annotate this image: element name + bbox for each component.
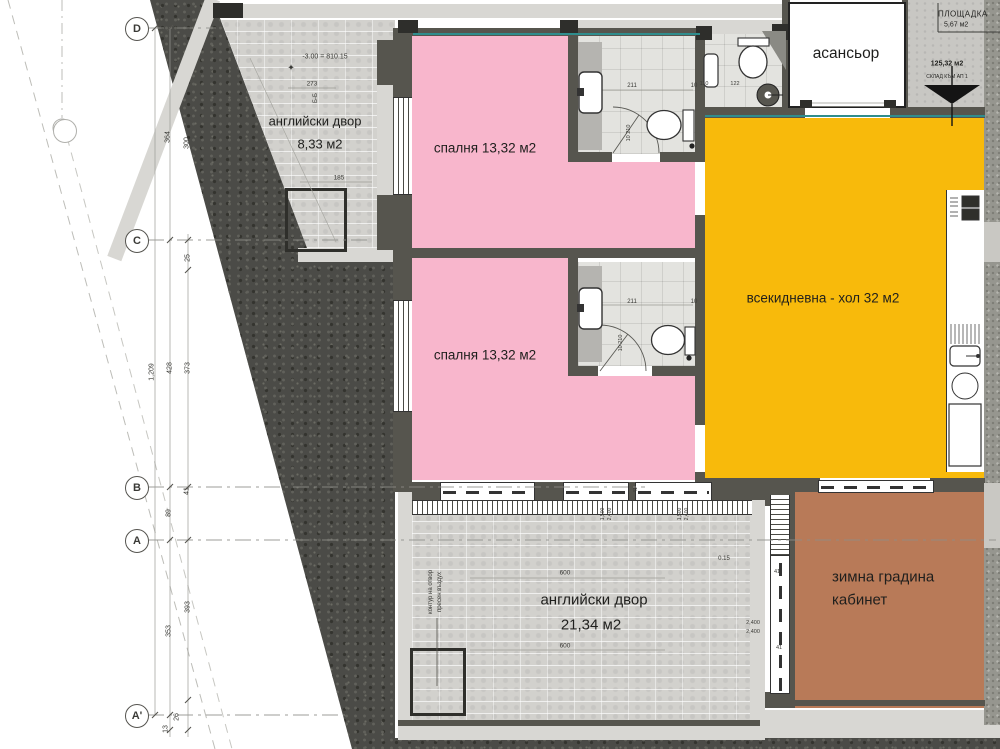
wall	[393, 258, 412, 300]
wall	[412, 482, 440, 500]
room-label-courtyard-upper: английски двор	[269, 114, 362, 129]
pier	[560, 20, 578, 34]
right-exterior-wall	[984, 0, 1000, 725]
wall	[393, 36, 412, 97]
courtyard-lower-right-wall	[750, 492, 765, 740]
dimension-label: 13	[163, 725, 170, 733]
wall	[533, 482, 563, 500]
courtyard-lower-pit	[410, 648, 466, 716]
wall	[930, 478, 985, 492]
dimension-label: пресен въздух	[437, 572, 443, 612]
bathroom2-counter	[578, 266, 602, 362]
grid-bubble-a: A	[125, 529, 149, 553]
dimension-label: 2,400	[746, 620, 760, 626]
room-label-courtyard-upper-area: 8,33 м2	[297, 137, 342, 152]
dimension-label: 41	[633, 487, 639, 493]
bottom-hatch-right	[760, 710, 1000, 738]
wall	[377, 40, 393, 85]
room-label-bedroom1: спалня 13,32 м2	[434, 141, 536, 156]
pier	[398, 20, 418, 33]
wall	[568, 258, 578, 376]
dimension-label: 428	[167, 362, 174, 374]
wall	[695, 28, 705, 160]
dimension-label: 393	[185, 601, 192, 613]
dimension-label: 1,209	[149, 363, 156, 381]
wall	[568, 152, 612, 162]
dimension-label: 89	[166, 509, 173, 517]
dimension-label: 2,400	[746, 629, 760, 635]
wall	[710, 482, 772, 500]
wall-block	[984, 222, 1000, 262]
dimension-label: 600	[560, 570, 571, 577]
bedroom2-hall-fill	[568, 376, 695, 480]
floor-plan: D C B A A' английски двор 8,33 м2 спалня…	[0, 0, 1000, 749]
wall	[398, 720, 760, 726]
room-label-landing: ПЛОЩАДКА	[938, 10, 988, 19]
courtyard-upper-pit	[285, 188, 347, 252]
window	[563, 482, 629, 502]
room-label-elevator: асансьор	[813, 45, 880, 63]
dimension-label: 26	[174, 713, 181, 721]
window	[635, 482, 712, 502]
wall	[695, 215, 705, 425]
dimension-label: 1,500	[600, 508, 606, 521]
dimension-label: 41	[184, 487, 191, 495]
room-label-courtyard-lower-area: 21,34 м2	[561, 617, 621, 634]
dimension-label: 1,500	[677, 508, 683, 521]
wall	[568, 36, 578, 162]
dimension-label: 211	[627, 299, 637, 305]
winter-garden-grate	[770, 495, 790, 555]
dimension-label: ✦	[287, 63, 295, 74]
grid-bubble-empty	[53, 119, 77, 143]
dimension-label: 10 210	[618, 335, 624, 352]
courtyard-upper-grate	[377, 85, 393, 195]
bedroom1-window	[393, 97, 412, 195]
pier	[213, 3, 243, 18]
grid-bubble-b: B	[125, 476, 149, 500]
wall	[568, 366, 598, 376]
dimension-label: 2,400	[607, 508, 613, 521]
dimension-label: 185	[334, 175, 345, 182]
dimension-label: 10 210	[626, 125, 632, 142]
room-label-living: всекидневна - хол 32 м2	[747, 291, 900, 306]
dimension-label: 300	[184, 137, 191, 149]
room-label-landing-area: 5,67 м2	[944, 22, 968, 29]
storage-area-label: 125,32 м2	[931, 61, 963, 68]
bedroom2-fill	[412, 258, 568, 480]
dimension-label: 10	[691, 299, 698, 305]
dimension-label: 353	[166, 625, 173, 637]
dimension-label: 25	[185, 254, 192, 262]
bedroom1-hall-fill	[568, 162, 695, 248]
dimension-label: 373	[185, 362, 192, 374]
wc-floor	[703, 30, 783, 108]
window	[440, 482, 535, 502]
bathroom1-counter	[578, 42, 602, 150]
dimension-label: контур на отвор	[428, 570, 434, 614]
storage-name-label: СКЛАД КЪМ АП 1	[926, 74, 968, 80]
dimension-label: 122	[730, 81, 739, 87]
living-south-window	[818, 480, 934, 493]
bedroom2-window	[393, 300, 412, 412]
dimension-label: 10	[691, 83, 698, 89]
winter-garden-fill	[795, 492, 985, 708]
dimension-label: 273	[307, 81, 318, 88]
dimension-label: 600	[560, 643, 571, 650]
window-sill-strip	[412, 500, 752, 515]
grid-bubble-a-prime: A'	[125, 704, 149, 728]
dimension-label: 364	[165, 131, 172, 143]
room-label-courtyard-lower: английски двор	[540, 592, 647, 609]
dimension-label: -3.00 = 810.15	[302, 54, 347, 61]
wall	[393, 193, 412, 258]
dimension-label: 110	[700, 81, 709, 87]
room-label-winter-garden-1: зимна градина	[832, 569, 934, 586]
wall	[377, 195, 393, 250]
waterproofing-line	[413, 33, 700, 35]
dimension-label: 41	[776, 645, 782, 651]
grid-bubble-d: D	[125, 17, 149, 41]
grid-bubble-c: C	[125, 229, 149, 253]
wall	[792, 700, 985, 706]
room-label-winter-garden-2: кабинет	[832, 592, 887, 609]
dimension-label: 211	[627, 83, 637, 89]
room-label-bedroom2: спалня 13,32 м2	[434, 348, 536, 363]
wall	[393, 248, 703, 258]
courtyard-lower-bottom-hatch	[398, 726, 760, 740]
dimension-label: 41	[774, 569, 780, 575]
top-wall-hatch	[213, 4, 790, 18]
kitchen-counter	[946, 190, 985, 472]
wall-block	[984, 483, 1000, 548]
wall	[393, 410, 412, 492]
winter-garden-window	[770, 555, 790, 694]
waterproofing-line-2	[705, 115, 985, 117]
dimension-label: 2,400	[684, 508, 690, 521]
dimension-label: Б-Б	[313, 93, 319, 103]
dimension-label: 0.15	[718, 556, 730, 562]
wall	[765, 692, 792, 708]
